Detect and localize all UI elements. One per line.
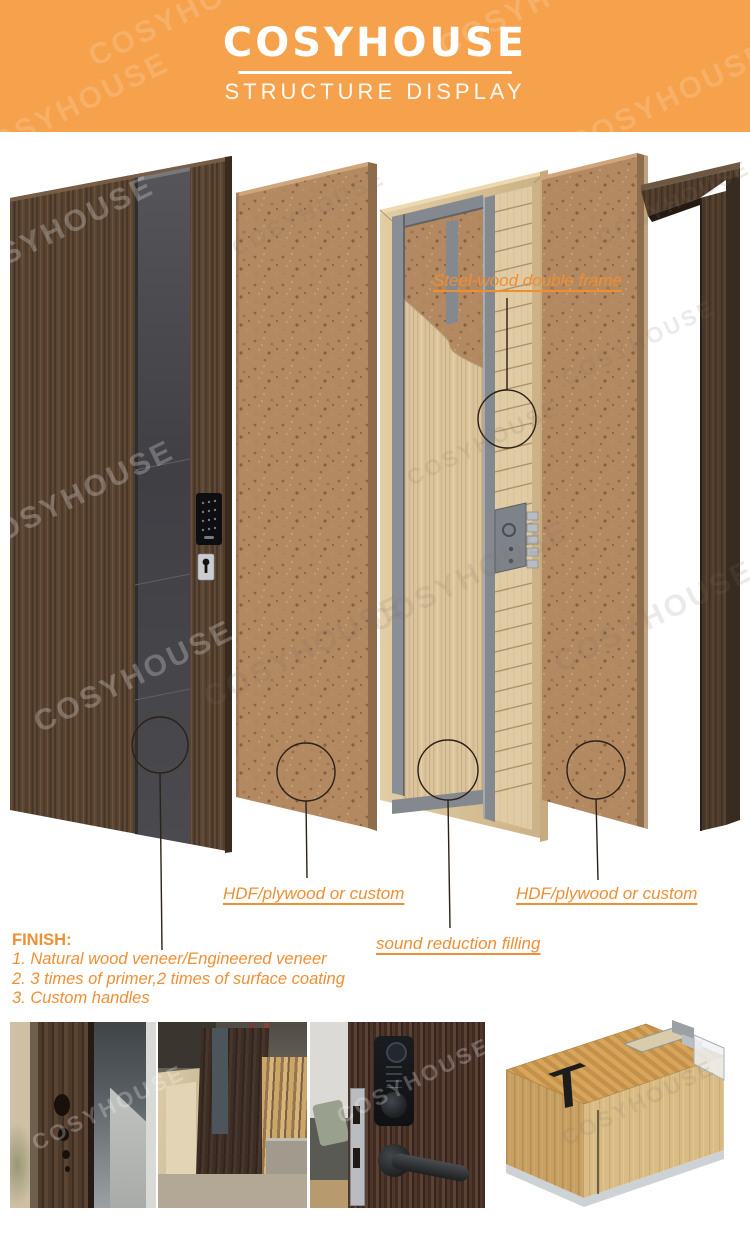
fingerprint-reader xyxy=(386,1042,407,1063)
smart-lock-keypad xyxy=(196,493,222,545)
finish-notes: FINISH: 1. Natural wood veneer/Engineere… xyxy=(12,931,345,1009)
label-hdf-right: HDF/plywood or custom xyxy=(516,884,697,904)
photo-workshop-door xyxy=(158,1022,307,1208)
drill-hole xyxy=(58,1128,69,1141)
layer-door-frame xyxy=(641,162,740,831)
label-hdf-left: HDF/plywood or custom xyxy=(223,884,404,904)
lock-knob xyxy=(381,1092,407,1118)
finish-item: 2. 3 times of primer,2 times of surface … xyxy=(12,970,345,990)
render-frame-cutaway xyxy=(496,1018,738,1210)
finish-heading: FINISH: xyxy=(12,931,345,950)
drill-hole xyxy=(65,1166,70,1172)
drill-hole xyxy=(54,1094,70,1116)
layer-hdf-back xyxy=(542,153,648,829)
photo-door-edge-holes xyxy=(10,1022,156,1208)
photo-smart-lock-handle xyxy=(310,1022,485,1208)
drill-hole xyxy=(62,1150,70,1159)
finish-item: 3. Custom handles xyxy=(12,989,345,1009)
promo-page: COSYHOUSE COSYHOUSE COSYHOUSE COSYHOUSE … xyxy=(0,0,750,1254)
label-steel-wood-frame: Steel-wood double frame xyxy=(433,271,622,291)
finish-item: 1. Natural wood veneer/Engineered veneer xyxy=(12,950,345,970)
keyhole-plate xyxy=(198,554,214,580)
infill-panel-wavy xyxy=(405,300,483,800)
title-divider xyxy=(238,71,512,74)
mortise-lock-module xyxy=(495,503,526,573)
page-subtitle: STRUCTURE DISPLAY xyxy=(0,79,750,105)
label-sound-filling: sound reduction filling xyxy=(376,934,540,954)
header-banner: COSYHOUSE COSYHOUSE COSYHOUSE COSYHOUSE … xyxy=(0,0,750,132)
layer-hdf-front xyxy=(236,162,377,831)
brand-title: COSYHOUSE xyxy=(0,20,750,66)
layer-finished-door xyxy=(10,156,232,853)
